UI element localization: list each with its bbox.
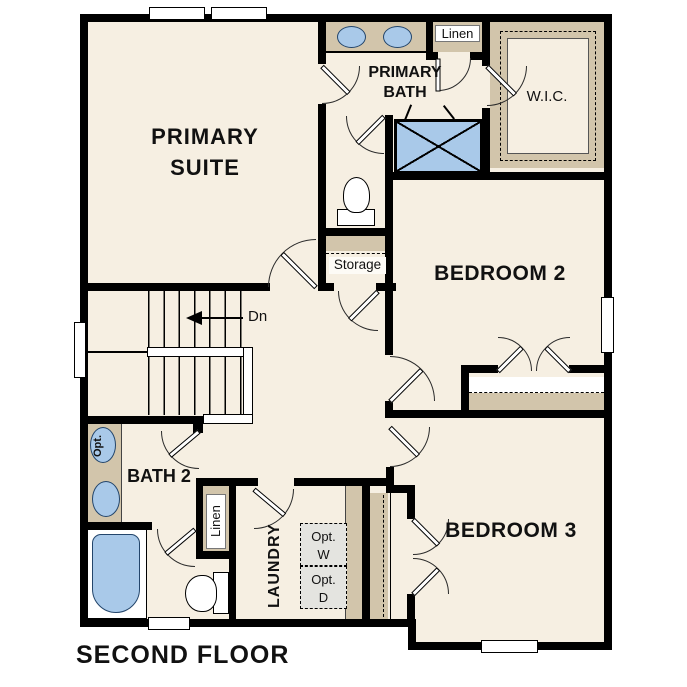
room-label-primary-bath: PRIMARY BATH bbox=[355, 63, 455, 103]
wall bbox=[569, 365, 604, 373]
primary-bath-label-line2: BATH bbox=[355, 83, 455, 103]
room-label-bath2: BATH 2 bbox=[127, 466, 191, 487]
primary-bath-sink-left bbox=[337, 26, 366, 48]
wall bbox=[326, 228, 390, 236]
wall bbox=[80, 14, 88, 627]
wall bbox=[386, 485, 415, 493]
stairs-lower-run bbox=[148, 357, 253, 415]
bedroom3-closet-edge-line bbox=[390, 493, 391, 619]
window-stairwell bbox=[74, 322, 86, 378]
primary-bath-sink-right bbox=[383, 26, 412, 48]
stairs-landing-line bbox=[86, 351, 148, 353]
wall bbox=[318, 283, 334, 291]
wall bbox=[236, 478, 258, 486]
window-bedroom2 bbox=[601, 297, 614, 353]
room-label-bedroom2: BEDROOM 2 bbox=[425, 262, 575, 286]
linen-upper-label: Linen bbox=[435, 25, 480, 42]
optional-washer-label-line1: Opt. bbox=[301, 528, 346, 546]
wall bbox=[482, 108, 490, 180]
room-label-bedroom3: BEDROOM 3 bbox=[436, 519, 586, 543]
storage-shelf bbox=[326, 236, 385, 251]
bathtub bbox=[92, 534, 140, 613]
primary-suite-label-line2: SUITE bbox=[120, 153, 290, 184]
bedroom3-closet-shelf bbox=[370, 493, 388, 619]
wall bbox=[229, 478, 236, 619]
bedroom2-closet-dashed-line bbox=[469, 392, 604, 393]
wall bbox=[470, 52, 482, 60]
room-label-primary-suite: PRIMARY SUITE bbox=[120, 122, 290, 184]
optional-dryer-label-line1: Opt. bbox=[301, 571, 346, 589]
stairs-railing-bottom bbox=[203, 414, 253, 424]
stairs-down-arrow-line bbox=[200, 317, 243, 319]
stairs-railing-top bbox=[147, 347, 253, 357]
window-bedroom3 bbox=[481, 640, 538, 653]
primary-bath-label-line1: PRIMARY bbox=[355, 63, 455, 83]
stairs-down-label: Dn bbox=[248, 308, 278, 325]
bedroom3-closet-dashed-line bbox=[383, 495, 384, 617]
floor-plan: Opt. W Opt. D bbox=[0, 0, 687, 687]
window-primary-suite-1 bbox=[149, 7, 205, 20]
room-label-laundry: LAUNDRY bbox=[266, 510, 288, 622]
wall bbox=[196, 551, 236, 559]
wall bbox=[392, 172, 612, 180]
optional-washer-label-line2: W bbox=[301, 546, 346, 564]
shower bbox=[394, 119, 483, 174]
laundry-shelf bbox=[345, 486, 363, 619]
stairs-down-arrow-head bbox=[186, 311, 202, 325]
bath2-sink bbox=[92, 481, 120, 517]
wall bbox=[385, 115, 393, 355]
stairs-railing-right bbox=[243, 347, 253, 424]
primary-suite-label-line1: PRIMARY bbox=[120, 122, 290, 153]
wall bbox=[196, 478, 203, 558]
optional-dryer-label-line2: D bbox=[301, 589, 346, 607]
primary-toilet-bowl bbox=[343, 177, 370, 213]
wall bbox=[318, 104, 326, 291]
wall bbox=[482, 14, 490, 66]
wall bbox=[80, 619, 416, 627]
bedroom2-closet-shelf bbox=[469, 393, 604, 410]
window-primary-suite-2 bbox=[211, 7, 267, 20]
bedroom2-closet-floor bbox=[469, 377, 604, 393]
wall bbox=[318, 14, 326, 64]
room-label-wic: W.I.C. bbox=[517, 88, 577, 105]
wall bbox=[80, 416, 204, 424]
wall bbox=[80, 522, 152, 530]
wall bbox=[461, 365, 498, 373]
optional-dryer-box: Opt. D bbox=[300, 566, 347, 609]
wall bbox=[362, 486, 370, 619]
wall bbox=[407, 493, 415, 519]
bath2-optional-sink-label: Opt. bbox=[92, 428, 114, 464]
window-bath2 bbox=[148, 617, 190, 630]
linen-lower-label: Linen bbox=[206, 494, 226, 549]
page-title: SECOND FLOOR bbox=[76, 641, 316, 670]
wall bbox=[407, 594, 415, 619]
storage-label: Storage bbox=[329, 257, 386, 274]
wall bbox=[294, 478, 390, 486]
bath2-toilet-bowl bbox=[185, 575, 217, 612]
storage-shelf-dashed-line bbox=[326, 253, 385, 254]
wall bbox=[386, 410, 612, 418]
optional-washer-box: Opt. W bbox=[300, 523, 347, 566]
